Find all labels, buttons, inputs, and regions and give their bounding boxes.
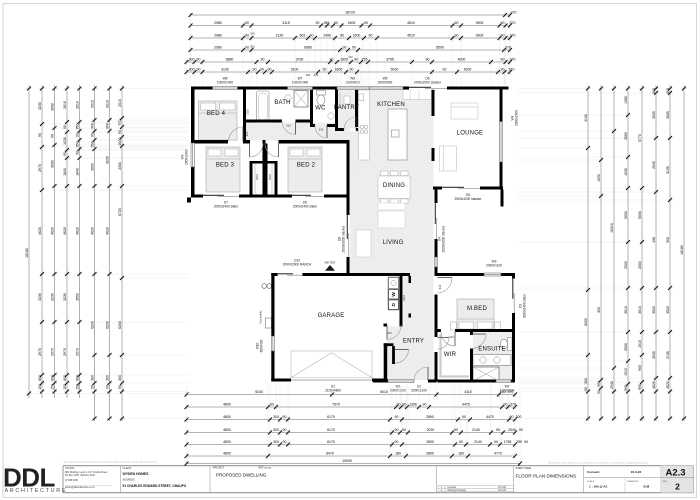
svg-text:2500x3200 stacker: 2500x3200 stacker [455, 197, 483, 201]
svg-text:6170: 6170 [327, 428, 335, 432]
svg-text:90: 90 [105, 385, 109, 389]
svg-text:150: 150 [50, 384, 54, 390]
svg-text:DDL Building, Level 2, 107 Vi: DDL Building, Level 2, 107 Victoria Stre… [65, 471, 107, 474]
svg-text:90: 90 [494, 440, 498, 444]
svg-text:2980: 2980 [214, 46, 222, 50]
svg-text:3520: 3520 [652, 306, 656, 314]
svg-text:3230: 3230 [63, 293, 67, 301]
svg-text:90: 90 [316, 21, 320, 25]
svg-text:3230: 3230 [38, 102, 42, 110]
svg-text:2010: 2010 [118, 99, 122, 107]
svg-text:3190: 3190 [221, 68, 229, 72]
svg-text:90: 90 [369, 34, 373, 38]
svg-text:4100: 4100 [584, 114, 588, 122]
svg-text:REV: REV [663, 481, 668, 483]
svg-text:90: 90 [597, 390, 601, 394]
svg-text:180: 180 [395, 452, 401, 456]
svg-text:90: 90 [245, 34, 249, 38]
svg-text:2610: 2610 [75, 101, 79, 109]
svg-text:610: 610 [319, 127, 324, 131]
svg-text:SHEET NAME: SHEET NAME [516, 467, 532, 470]
svg-text:2940: 2940 [610, 381, 614, 389]
svg-text:300: 300 [105, 375, 109, 381]
svg-text:2000x3200 stacker: 2000x3200 stacker [442, 225, 446, 253]
svg-text:90: 90 [395, 440, 399, 444]
svg-text:90: 90 [268, 68, 272, 72]
svg-text:90: 90 [501, 34, 505, 38]
svg-text:90: 90 [496, 428, 500, 432]
svg-text:4470: 4470 [462, 403, 470, 407]
svg-text:300: 300 [118, 375, 122, 381]
svg-text:2110: 2110 [245, 109, 249, 115]
svg-text:800: 800 [50, 375, 54, 381]
svg-text:5010: 5010 [380, 390, 388, 394]
svg-text:900: 900 [105, 123, 109, 129]
svg-text:4510: 4510 [407, 34, 415, 38]
svg-text:1840: 1840 [75, 168, 79, 176]
svg-text:755: 755 [362, 58, 368, 62]
svg-text:2980: 2980 [214, 34, 222, 38]
svg-text:3060: 3060 [50, 160, 54, 168]
svg-text:3195: 3195 [666, 166, 670, 174]
svg-text:KITCHEN: KITCHEN [377, 102, 405, 108]
svg-text:4800: 4800 [223, 452, 231, 456]
svg-text:6200: 6200 [584, 318, 588, 326]
svg-text:502: 502 [300, 34, 306, 38]
svg-text:16-3-26: 16-3-26 [498, 487, 507, 489]
svg-text:6170: 6170 [327, 415, 335, 419]
svg-text:2500: 2500 [638, 261, 642, 269]
svg-text:90: 90 [395, 415, 399, 419]
svg-text:90: 90 [343, 46, 347, 50]
svg-text:3755: 3755 [386, 58, 394, 62]
svg-text:BED 4: BED 4 [207, 111, 226, 117]
svg-text:ARCHITECTURE: ARCHITECTURE [5, 488, 68, 494]
svg-text:19290: 19290 [342, 459, 352, 463]
svg-text:Consent: Consent [587, 470, 599, 474]
svg-text:370: 370 [510, 403, 516, 407]
svg-text:90: 90 [584, 387, 588, 391]
svg-text:600: 600 [250, 32, 255, 36]
svg-text:90: 90 [283, 440, 287, 444]
svg-text:The copyright of this drawing: The copyright of this drawing remains th… [64, 461, 158, 464]
svg-text:2000x3200 stacker: 2000x3200 stacker [342, 225, 346, 253]
svg-text:810: 810 [438, 284, 442, 289]
svg-text:90: 90 [90, 385, 94, 389]
svg-text:DINING: DINING [383, 183, 405, 189]
svg-text:2000x2400: 2000x2400 [185, 149, 189, 165]
svg-text:1600: 1600 [348, 21, 356, 25]
svg-text:6170: 6170 [327, 440, 335, 444]
svg-text:3880: 3880 [226, 58, 234, 62]
svg-text:800: 800 [63, 375, 67, 381]
svg-text:PROJECT: PROJECT [213, 466, 225, 469]
svg-text:07 838 0168: 07 838 0168 [65, 480, 78, 482]
svg-text:90: 90 [395, 428, 399, 432]
svg-text:300: 300 [273, 440, 279, 444]
svg-text:990: 990 [597, 381, 601, 387]
svg-text:3520: 3520 [666, 306, 670, 314]
svg-text:600: 600 [314, 73, 319, 77]
svg-text:950: 950 [75, 142, 79, 148]
svg-text:610: 610 [388, 331, 393, 335]
svg-text:2100x4800: 2100x4800 [325, 389, 341, 393]
svg-text:90: 90 [443, 68, 447, 72]
svg-text:90: 90 [118, 385, 122, 389]
svg-text:300: 300 [666, 88, 670, 94]
svg-text:3610: 3610 [624, 306, 628, 314]
svg-text:1000X1400: 1000X1400 [292, 81, 309, 85]
svg-text:4800: 4800 [223, 403, 231, 407]
svg-text:416: 416 [348, 55, 353, 59]
svg-text:90: 90 [403, 403, 407, 407]
svg-text:51 CHARLES EDWARD STREET, OHAU: 51 CHARLES EDWARD STREET, OHAUPO [123, 484, 187, 488]
svg-text:90: 90 [63, 125, 67, 129]
svg-text:1380: 1380 [624, 96, 628, 104]
svg-text:300: 300 [189, 68, 195, 72]
svg-text:785: 785 [516, 440, 522, 444]
svg-text:90: 90 [283, 415, 287, 419]
svg-text:90: 90 [455, 21, 459, 25]
svg-text:2300: 2300 [118, 162, 122, 170]
svg-text:90: 90 [426, 58, 430, 62]
svg-text:admin@ddlarchitecture.co.nz: admin@ddlarchitecture.co.nz [65, 486, 96, 489]
svg-text:GARAGE: GARAGE [318, 313, 345, 319]
svg-text:2000X600: 2000X600 [378, 81, 393, 85]
svg-text:300: 300 [90, 375, 94, 381]
svg-text:Gas infinity: Gas infinity [259, 310, 263, 324]
svg-text:180: 180 [458, 452, 464, 456]
svg-text:WC: WC [315, 106, 326, 112]
svg-text:4800: 4800 [223, 428, 231, 432]
svg-text:5050: 5050 [638, 211, 642, 219]
svg-text:990: 990 [638, 384, 642, 390]
svg-text:300: 300 [189, 58, 195, 62]
svg-text:4800: 4800 [223, 440, 231, 444]
svg-text:2970: 2970 [38, 348, 42, 356]
svg-text:150: 150 [38, 384, 42, 390]
svg-text:2970: 2970 [75, 348, 79, 356]
svg-text:90: 90 [245, 21, 249, 25]
svg-text:1515: 1515 [624, 368, 628, 376]
svg-text:METER: METER [325, 261, 336, 265]
svg-text:300: 300 [584, 378, 588, 384]
svg-text:90: 90 [519, 428, 523, 432]
svg-text:90: 90 [402, 428, 406, 432]
svg-text:1755: 1755 [504, 440, 512, 444]
svg-text:90: 90 [455, 34, 459, 38]
svg-text:90: 90 [63, 152, 67, 156]
svg-text:2010: 2010 [268, 174, 272, 180]
svg-text:90: 90 [50, 134, 54, 138]
svg-text:9240: 9240 [255, 390, 263, 394]
svg-text:Working Drawings: Working Drawings [448, 489, 467, 492]
svg-text:4510: 4510 [407, 21, 415, 25]
svg-text:300: 300 [597, 307, 601, 313]
svg-text:370: 370 [511, 11, 517, 15]
svg-text:90: 90 [283, 428, 287, 432]
svg-text:1600: 1600 [353, 34, 361, 38]
svg-text:6200: 6200 [105, 321, 109, 329]
svg-text:90: 90 [270, 403, 274, 407]
svg-text:90: 90 [462, 415, 466, 419]
svg-text:90: 90 [330, 58, 334, 62]
svg-text:905: 905 [624, 385, 628, 391]
svg-text:4620: 4620 [50, 227, 54, 235]
svg-text:5770: 5770 [638, 134, 642, 142]
svg-text:Reproduction of the whole or p: Reproduction of the whole or part of thi… [548, 462, 649, 465]
svg-text:90: 90 [352, 46, 356, 50]
svg-text:2000X2000 RANCH: 2000X2000 RANCH [283, 263, 312, 267]
svg-text:90: 90 [364, 21, 368, 25]
svg-text:24-3-26: 24-3-26 [498, 490, 507, 492]
svg-text:90: 90 [459, 440, 463, 444]
svg-text:800: 800 [38, 375, 42, 381]
svg-text:438: 438 [652, 237, 656, 243]
svg-text:4620: 4620 [75, 227, 79, 235]
svg-text:3230: 3230 [38, 293, 42, 301]
svg-text:610: 610 [286, 123, 291, 127]
svg-text:90: 90 [340, 34, 344, 38]
svg-text:600: 600 [250, 45, 255, 49]
svg-text:2140: 2140 [472, 428, 480, 432]
svg-text:2135: 2135 [666, 351, 670, 359]
svg-text:DRAWN BY: DRAWN BY [627, 480, 639, 483]
svg-text:6200: 6200 [118, 321, 122, 329]
svg-text:90: 90 [260, 68, 264, 72]
svg-text:3090: 3090 [105, 156, 109, 164]
svg-text:4800: 4800 [223, 415, 231, 419]
svg-text:90: 90 [510, 415, 514, 419]
svg-text:300: 300 [273, 428, 279, 432]
svg-text:1840: 1840 [63, 168, 67, 176]
svg-text:2970: 2970 [38, 164, 42, 172]
svg-text:150: 150 [63, 384, 67, 390]
svg-text:CLIENT: CLIENT [123, 467, 132, 470]
svg-text:LOUNGE: LOUNGE [457, 131, 484, 137]
svg-text:2970: 2970 [50, 348, 54, 356]
svg-text:2010: 2010 [105, 100, 109, 108]
svg-text:3005: 3005 [666, 111, 670, 119]
svg-text:5050: 5050 [624, 211, 628, 219]
svg-text:6720: 6720 [118, 208, 122, 216]
svg-text:2000x2200 stacker: 2000x2200 stacker [414, 81, 442, 85]
svg-text:300: 300 [652, 88, 656, 94]
svg-text:16-3-26: 16-3-26 [631, 470, 642, 474]
svg-text:370: 370 [505, 46, 511, 50]
svg-text:2000x2400: 2000x2400 [515, 110, 519, 126]
svg-text:2890: 2890 [426, 440, 434, 444]
svg-text:370: 370 [510, 58, 516, 62]
svg-text:2020: 2020 [427, 428, 435, 432]
svg-text:950: 950 [75, 124, 79, 130]
svg-text:90: 90 [504, 403, 508, 407]
svg-text:905: 905 [638, 365, 642, 371]
svg-text:600X400: 600X400 [260, 339, 264, 352]
svg-text:2010: 2010 [255, 174, 259, 180]
svg-text:90: 90 [454, 428, 458, 432]
svg-text:90: 90 [501, 21, 505, 25]
svg-text:2540: 2540 [508, 428, 516, 432]
svg-text:370: 370 [510, 21, 516, 25]
svg-text:M.BED: M.BED [467, 306, 487, 312]
svg-text:2610: 2610 [63, 101, 67, 109]
svg-text:3790: 3790 [296, 58, 304, 62]
svg-text:2890: 2890 [426, 452, 434, 456]
svg-text:2000: 2000 [118, 138, 122, 146]
svg-text:BED 3: BED 3 [216, 163, 235, 169]
svg-text:2000X1100: 2000X1100 [486, 264, 502, 268]
svg-text:2000x2400 slider: 2000x2400 slider [214, 205, 239, 209]
svg-text:950: 950 [90, 142, 94, 148]
svg-text:1490: 1490 [323, 34, 331, 38]
svg-text:90: 90 [397, 403, 401, 407]
svg-text:A2.3: A2.3 [666, 467, 686, 478]
svg-text:1306: 1306 [409, 403, 417, 407]
svg-text:2120: 2120 [276, 34, 284, 38]
svg-text:2010: 2010 [90, 100, 94, 108]
svg-text:6200: 6200 [90, 321, 94, 329]
svg-text:2000x2400 slider: 2000x2400 slider [523, 293, 527, 318]
svg-text:2140: 2140 [474, 440, 482, 444]
svg-text:1030: 1030 [63, 137, 67, 145]
svg-text:995: 995 [324, 21, 330, 25]
svg-text:90: 90 [323, 68, 327, 72]
svg-text:SCALE: SCALE [587, 480, 595, 483]
svg-text:90: 90 [75, 151, 79, 155]
svg-text:6080: 6080 [304, 46, 312, 50]
svg-text:1 : 100 @ A3: 1 : 100 @ A3 [589, 485, 607, 489]
svg-text:Consent: Consent [448, 486, 457, 489]
svg-text:1630: 1630 [624, 168, 628, 176]
svg-text:3900: 3900 [476, 34, 484, 38]
svg-text:3005: 3005 [652, 111, 656, 119]
svg-text:90: 90 [501, 58, 505, 62]
svg-text:6470: 6470 [326, 452, 334, 456]
svg-text:2910: 2910 [402, 295, 406, 301]
svg-text:90: 90 [90, 133, 94, 137]
svg-text:570: 570 [509, 68, 515, 72]
svg-text:90: 90 [197, 58, 201, 62]
svg-text:4770: 4770 [494, 452, 502, 456]
svg-text:1900X600: 1900X600 [345, 81, 360, 85]
svg-text:3230: 3230 [50, 293, 54, 301]
svg-text:90: 90 [310, 34, 314, 38]
svg-text:18720: 18720 [345, 11, 355, 15]
svg-text:3100: 3100 [291, 68, 299, 72]
svg-text:4620: 4620 [652, 381, 656, 389]
svg-text:610: 610 [449, 335, 454, 339]
svg-text:600: 600 [306, 73, 311, 77]
svg-text:90: 90 [245, 46, 249, 50]
svg-text:2000X1100: 2000X1100 [390, 389, 406, 393]
svg-text:2980: 2980 [214, 21, 222, 25]
svg-text:90: 90 [423, 403, 427, 407]
svg-text:4620: 4620 [63, 227, 67, 235]
svg-text:16310: 16310 [610, 223, 614, 233]
svg-text:BATH: BATH [274, 100, 290, 106]
svg-text:90: 90 [261, 58, 265, 62]
svg-text:370: 370 [510, 34, 516, 38]
svg-text:1515: 1515 [638, 340, 642, 348]
svg-text:3060: 3060 [50, 103, 54, 111]
svg-text:800: 800 [75, 375, 79, 381]
svg-text:PANTRY: PANTRY [334, 105, 359, 111]
svg-text:18180: 18180 [25, 248, 29, 258]
svg-text:4620: 4620 [38, 227, 42, 235]
svg-text:D: D [391, 303, 397, 307]
svg-text:90: 90 [197, 68, 201, 72]
svg-text:ENTRY: ENTRY [403, 339, 424, 345]
svg-text:1800: 1800 [335, 68, 343, 72]
svg-text:4620: 4620 [666, 381, 670, 389]
svg-text:3610: 3610 [638, 306, 642, 314]
svg-text:LIVING: LIVING [383, 240, 404, 246]
svg-text:1000X1400: 1000X1400 [217, 81, 234, 85]
svg-text:1800: 1800 [340, 58, 348, 62]
svg-text:970: 970 [118, 120, 122, 126]
svg-text:FLOOR PLAN DIMENSIONS: FLOOR PLAN DIMENSIONS [516, 473, 577, 478]
svg-text:4470: 4470 [486, 415, 494, 419]
svg-text:2545: 2545 [652, 161, 656, 169]
svg-text:2000x2400 slider: 2000x2400 slider [293, 205, 318, 209]
svg-text:STUDIO: STUDIO [65, 467, 75, 470]
svg-text:18180: 18180 [680, 245, 684, 255]
svg-text:PO Box 1225, Hamilton 3240: PO Box 1225, Hamilton 3240 [65, 474, 95, 477]
svg-text:4200: 4200 [458, 58, 466, 62]
svg-text:3115: 3115 [282, 21, 290, 25]
svg-text:5010: 5010 [391, 68, 399, 72]
svg-text:REF yy-xxx: REF yy-xxx [259, 466, 273, 469]
svg-text:90: 90 [524, 440, 528, 444]
svg-text:90: 90 [354, 58, 358, 62]
svg-text:2: 2 [675, 481, 680, 491]
svg-text:6500: 6500 [436, 46, 444, 50]
svg-text:3650: 3650 [75, 293, 79, 301]
svg-text:1090: 1090 [597, 174, 601, 182]
svg-text:W: W [391, 292, 397, 297]
svg-text:ADDRESS: ADDRESS [123, 479, 135, 482]
svg-text:WIR: WIR [444, 352, 457, 358]
svg-text:BED 2: BED 2 [297, 163, 316, 169]
svg-text:4110: 4110 [464, 390, 472, 394]
svg-text:90: 90 [334, 21, 338, 25]
svg-text:PROPOSED DWELLING: PROPOSED DWELLING [216, 472, 267, 477]
svg-text:7570: 7570 [332, 403, 340, 407]
svg-text:90: 90 [253, 68, 257, 72]
svg-text:2500: 2500 [624, 261, 628, 269]
svg-text:90: 90 [38, 133, 42, 137]
svg-text:4620: 4620 [105, 227, 109, 235]
svg-text:2890: 2890 [426, 415, 434, 419]
svg-text:4200: 4200 [464, 68, 472, 72]
svg-text:WYDEN HOMES: WYDEN HOMES [123, 472, 150, 476]
svg-text:90: 90 [75, 133, 79, 137]
svg-text:905: 905 [666, 237, 670, 243]
svg-text:90: 90 [501, 68, 505, 72]
svg-text:2500: 2500 [624, 343, 628, 351]
svg-text:90: 90 [350, 68, 354, 72]
svg-text:B.M: B.M [644, 485, 650, 489]
svg-text:3060: 3060 [90, 163, 94, 171]
svg-text:900: 900 [90, 123, 94, 129]
svg-text:ENSUITE: ENSUITE [478, 347, 505, 353]
svg-text:810: 810 [245, 131, 249, 136]
svg-text:2545: 2545 [652, 351, 656, 359]
svg-text:4620: 4620 [90, 227, 94, 235]
svg-text:160, 570: 160, 570 [500, 390, 514, 394]
svg-text:300: 300 [273, 415, 279, 419]
